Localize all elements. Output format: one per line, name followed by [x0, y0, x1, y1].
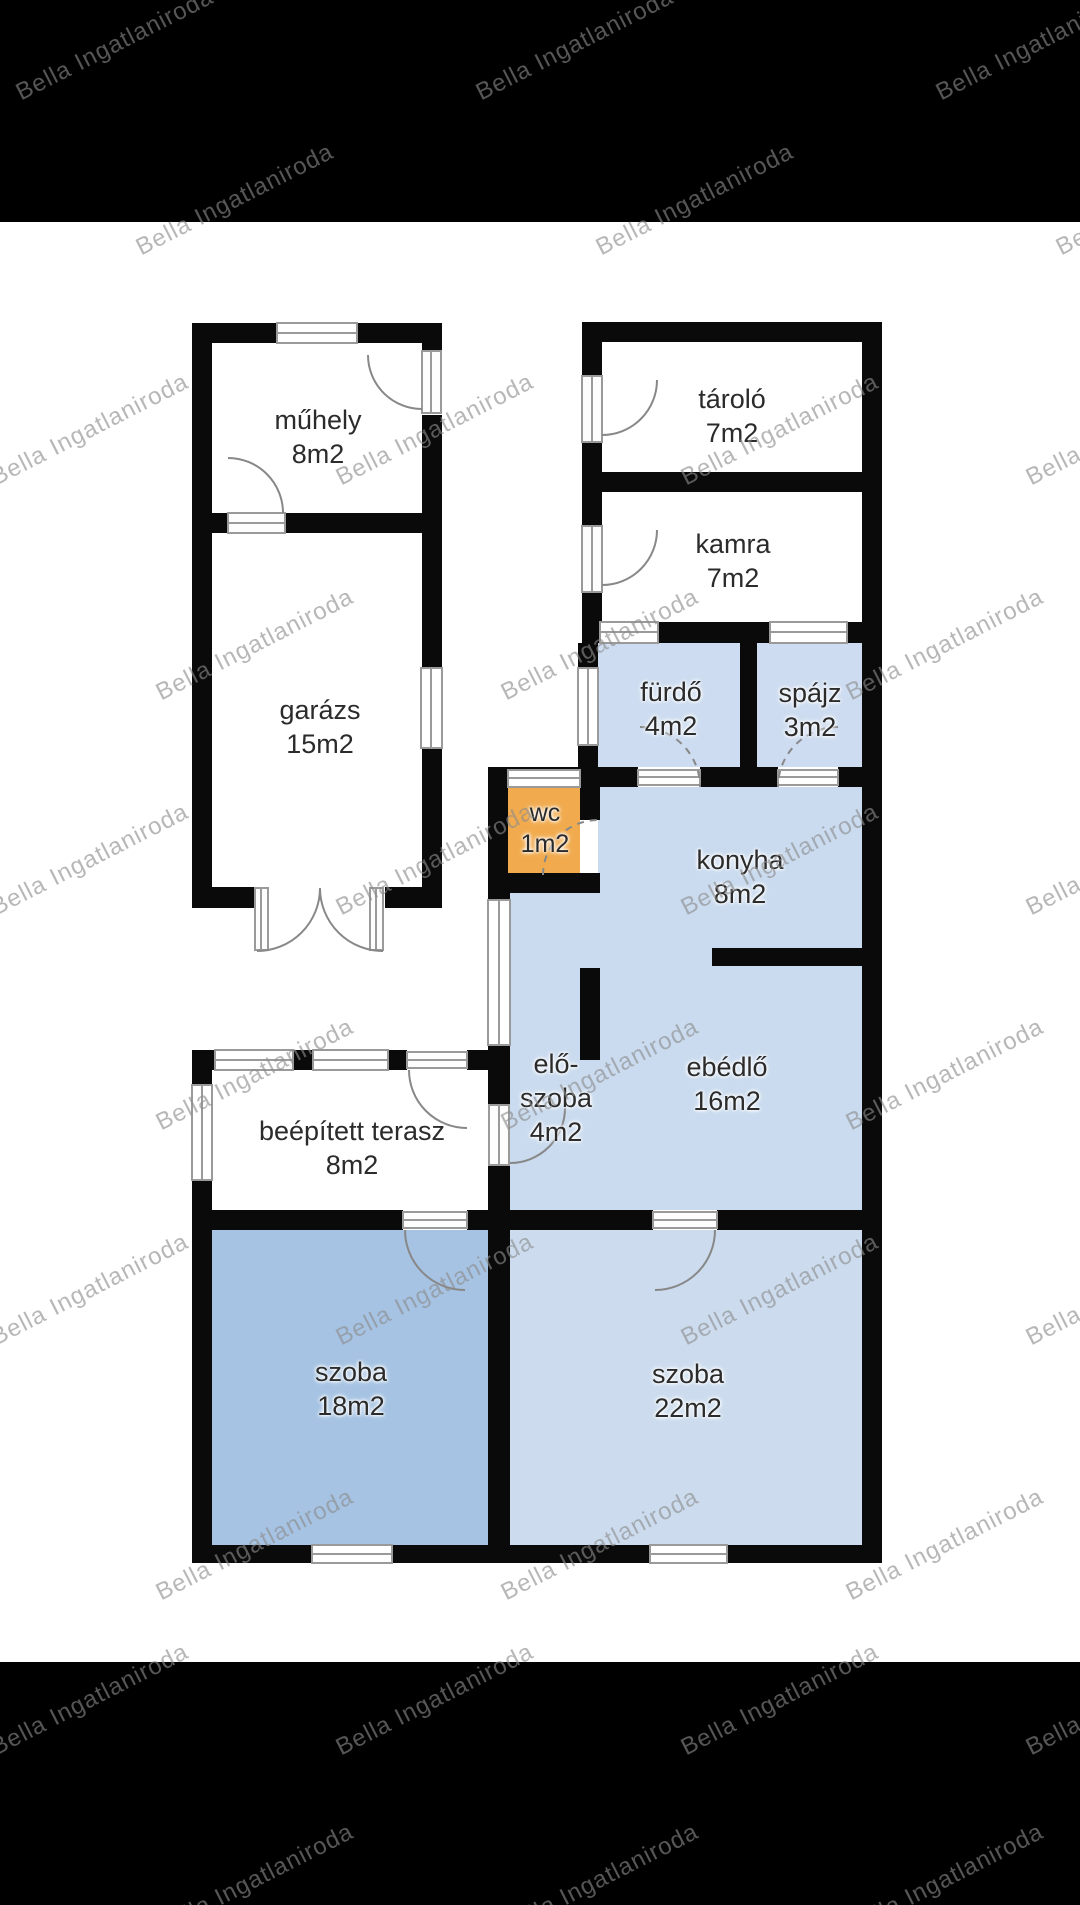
wall-segment: [727, 1545, 882, 1563]
wall-segment: [192, 887, 255, 908]
room-name: műhely: [274, 403, 361, 437]
room-name: szoba: [520, 1081, 592, 1115]
window: [650, 1545, 727, 1563]
wall-segment: [582, 322, 882, 342]
wall-segment: [388, 1050, 407, 1070]
wall-segment: [192, 1050, 215, 1070]
room-name: elő-: [520, 1047, 592, 1081]
room-area: 4m2: [640, 709, 702, 743]
room-label-eloszoba: elő- szoba 4m2: [520, 1047, 592, 1149]
wall-segment: [385, 887, 442, 908]
window: [215, 1050, 293, 1070]
room-name: szoba: [315, 1355, 387, 1389]
room-area: 4m2: [520, 1115, 592, 1149]
door-leaf: [255, 888, 268, 950]
room-name: kamra: [695, 527, 770, 561]
window: [770, 622, 847, 643]
wall-segment: [192, 1210, 403, 1230]
window: [312, 1545, 392, 1563]
door-leaf: [228, 513, 285, 533]
room-label-szoba22: szoba 22m2: [652, 1357, 724, 1425]
wall-segment: [700, 767, 778, 787]
room-name: tároló: [698, 382, 766, 416]
wall-segment: [488, 1230, 510, 1545]
door-leaf: [489, 1105, 509, 1165]
room-label-konyha: konyha 8m2: [696, 843, 783, 911]
window: [578, 668, 598, 745]
wall-segment: [467, 1050, 510, 1070]
wall-segment: [422, 415, 442, 908]
room-area: 18m2: [315, 1389, 387, 1423]
room-label-furdo: fürdő 4m2: [640, 675, 702, 743]
room-label-kamra: kamra 7m2: [695, 527, 770, 595]
letterbox-top: [0, 0, 1080, 222]
room-name: fürdő: [640, 675, 702, 709]
window: [313, 1050, 388, 1070]
wall-segment: [488, 893, 510, 900]
wall-segment: [580, 787, 600, 820]
window: [277, 323, 357, 343]
room-label-muhely: műhely 8m2: [274, 403, 361, 471]
room-area: 16m2: [686, 1084, 767, 1118]
screenshot-canvas: műhely 8m2 tároló 7m2 kamra 7m2 garázs 1…: [0, 0, 1080, 1905]
room-label-tarolo: tároló 7m2: [698, 382, 766, 450]
window: [600, 622, 658, 643]
room-label-wc: wc 1m2: [521, 798, 570, 860]
room-name: ebédlő: [686, 1050, 767, 1084]
wall-segment: [582, 342, 602, 376]
door-leaf: [403, 1212, 467, 1228]
room-area: 8m2: [259, 1148, 445, 1182]
wall-segment: [192, 323, 212, 908]
door-leaf: [582, 526, 602, 592]
room-name: garázs: [279, 693, 360, 727]
wall-segment: [717, 1210, 882, 1230]
room-name: beépített terasz: [259, 1114, 445, 1148]
wall-segment: [712, 948, 882, 966]
room-name: spájz: [778, 676, 841, 710]
room-area: 1m2: [521, 829, 570, 860]
door-leaf: [582, 376, 602, 442]
wall-segment: [838, 767, 862, 787]
wall-segment: [592, 472, 872, 492]
room-label-terasz: beépített terasz 8m2: [259, 1114, 445, 1182]
door-leaf: [778, 770, 838, 785]
wall-segment: [206, 513, 228, 533]
door-leaf: [422, 351, 441, 413]
room-area: 8m2: [696, 877, 783, 911]
door-leaf: [638, 770, 700, 785]
room-label-garazs: garázs 15m2: [279, 693, 360, 761]
wall-segment: [740, 643, 757, 787]
door-leaf: [370, 888, 383, 950]
window: [488, 900, 510, 1045]
floorplan-drawing: [0, 0, 1080, 1905]
window: [192, 1085, 212, 1180]
door-leaf: [653, 1212, 717, 1228]
room-label-szoba18: szoba 18m2: [315, 1355, 387, 1423]
room-name: szoba: [652, 1357, 724, 1391]
wall-segment: [192, 1070, 212, 1085]
wall-segment: [192, 1545, 312, 1563]
letterbox-bottom: [0, 1662, 1080, 1905]
wall-segment: [862, 322, 882, 1563]
window: [508, 770, 580, 787]
wall-segment: [192, 1230, 212, 1563]
wall-segment: [488, 873, 600, 893]
room-area: 7m2: [695, 561, 770, 595]
room-name: wc: [521, 798, 570, 829]
room-area: 7m2: [698, 416, 766, 450]
wall-segment: [293, 1050, 313, 1070]
room-area: 22m2: [652, 1391, 724, 1425]
room-label-spajz: spájz 3m2: [778, 676, 841, 744]
wall-segment: [422, 323, 442, 353]
room-name: konyha: [696, 843, 783, 877]
room-area: 15m2: [279, 727, 360, 761]
room-area: 3m2: [778, 710, 841, 744]
door-leaf: [407, 1052, 467, 1068]
room-area: 8m2: [274, 437, 361, 471]
room-label-ebedlo: ebédlő 16m2: [686, 1050, 767, 1118]
wall-segment: [467, 1210, 653, 1230]
wall-segment: [392, 1545, 650, 1563]
wall-segment: [285, 513, 436, 533]
window: [421, 668, 442, 748]
